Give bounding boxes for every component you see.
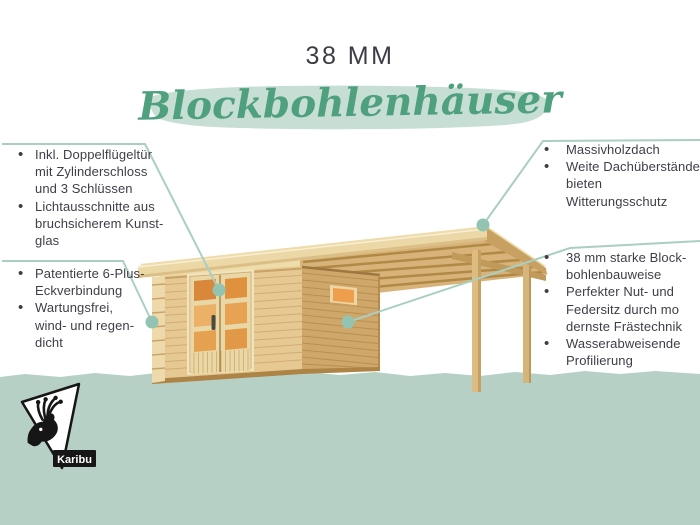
door-glass — [194, 330, 216, 352]
brush-stroke — [150, 86, 548, 130]
callout-dot-wall — [342, 316, 355, 329]
callout-line-roof — [483, 140, 700, 225]
brand-label: Karibu — [57, 454, 92, 466]
door-glass — [225, 302, 247, 325]
ground-band — [0, 371, 700, 525]
door-handle — [212, 315, 216, 330]
canopy-post-rear — [523, 266, 531, 383]
door-glass — [225, 328, 247, 350]
callout-dot-door — [213, 284, 226, 297]
callout-dot-corner — [146, 316, 159, 329]
side-window — [330, 285, 357, 306]
scene-canvas: Karibu — [0, 0, 700, 525]
corner-joint — [152, 276, 165, 383]
callout-dot-roof — [477, 219, 490, 232]
door-glass — [225, 277, 247, 299]
canopy-post-front — [472, 250, 481, 392]
side-window-pane — [333, 288, 354, 303]
cabin-side-wall — [302, 266, 380, 372]
callout-line-corner — [2, 261, 152, 322]
